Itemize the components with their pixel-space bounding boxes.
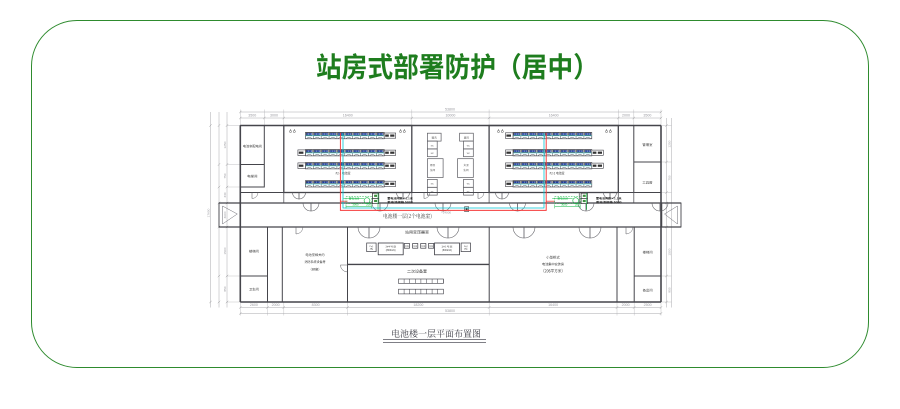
svg-text:750: 750 xyxy=(223,173,227,178)
svg-text:1250: 1250 xyxy=(667,140,671,147)
svg-text:~14000: ~14000 xyxy=(441,211,451,215)
svg-text:3000: 3000 xyxy=(270,114,278,118)
svg-text:MC: MC xyxy=(431,145,435,147)
svg-text:2000: 2000 xyxy=(272,303,280,307)
svg-text:1500: 1500 xyxy=(667,248,671,255)
svg-text:1500: 1500 xyxy=(223,247,227,254)
svg-text:16400: 16400 xyxy=(549,114,559,118)
svg-text:850: 850 xyxy=(223,286,227,291)
svg-text:(800kVA): (800kVA) xyxy=(386,249,396,252)
svg-text:WC: WC xyxy=(467,145,471,147)
svg-text:750: 750 xyxy=(667,175,671,180)
svg-text:200: 200 xyxy=(366,203,371,207)
svg-text:3500: 3500 xyxy=(643,114,651,118)
svg-text:3000: 3000 xyxy=(561,203,568,207)
svg-text:2600: 2600 xyxy=(250,303,258,307)
svg-text:WC: WC xyxy=(467,184,471,186)
svg-text:16400: 16400 xyxy=(343,114,353,118)
svg-text:8300: 8300 xyxy=(312,303,320,307)
svg-text:53800: 53800 xyxy=(445,309,455,313)
svg-text:2500: 2500 xyxy=(644,303,652,307)
svg-text:3000: 3000 xyxy=(352,203,359,207)
svg-text:18200: 18200 xyxy=(413,303,423,307)
svg-text:53800: 53800 xyxy=(445,108,455,112)
svg-text:850: 850 xyxy=(667,287,671,292)
svg-text:(800kVA): (800kVA) xyxy=(442,249,452,252)
svg-text:MC: MC xyxy=(431,184,435,186)
svg-text:WC: WC xyxy=(467,153,471,155)
svg-text:3500: 3500 xyxy=(248,114,256,118)
svg-text:MC: MC xyxy=(431,153,435,155)
svg-text:10000: 10000 xyxy=(445,114,455,118)
svg-text:16400: 16400 xyxy=(548,303,558,307)
svg-text:200: 200 xyxy=(575,203,580,207)
svg-text:2000: 2000 xyxy=(622,114,630,118)
svg-text:330: 330 xyxy=(223,192,227,197)
svg-text:1250: 1250 xyxy=(223,141,227,148)
svg-text:17600: 17600 xyxy=(206,208,210,217)
svg-text:3600: 3600 xyxy=(223,211,227,218)
svg-text:2000: 2000 xyxy=(622,303,630,307)
